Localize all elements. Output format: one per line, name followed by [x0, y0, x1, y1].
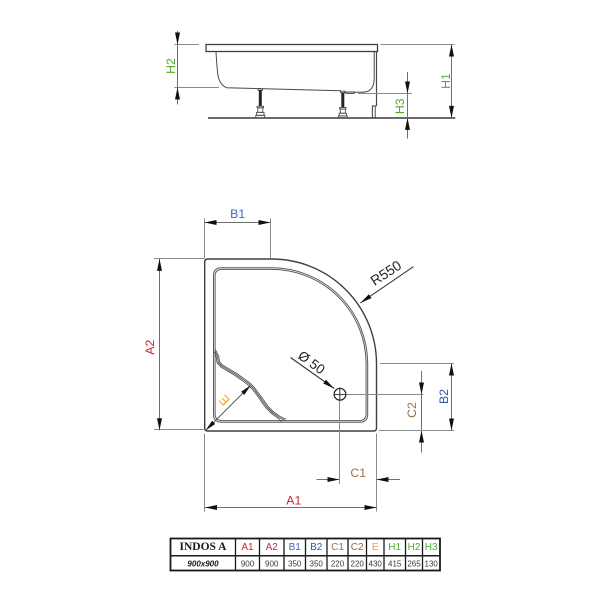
svg-text:350: 350 [310, 559, 324, 568]
svg-text:B1: B1 [230, 207, 245, 221]
svg-text:A2: A2 [266, 542, 279, 553]
svg-text:B1: B1 [289, 542, 302, 553]
svg-text:A1: A1 [286, 494, 301, 508]
svg-text:B2: B2 [310, 542, 323, 553]
svg-text:C1: C1 [331, 542, 344, 553]
svg-text:H1: H1 [388, 542, 401, 553]
svg-text:220: 220 [331, 559, 345, 568]
svg-text:900: 900 [241, 559, 255, 568]
svg-text:220: 220 [351, 559, 365, 568]
svg-text:H1: H1 [439, 73, 453, 89]
svg-text:H3: H3 [393, 98, 407, 114]
svg-text:H2: H2 [164, 58, 178, 74]
svg-text:350: 350 [288, 559, 302, 568]
svg-text:130: 130 [425, 559, 439, 568]
svg-text:B2: B2 [437, 389, 451, 404]
svg-text:H3: H3 [425, 542, 438, 553]
svg-text:C2: C2 [405, 402, 419, 418]
svg-text:415: 415 [388, 559, 402, 568]
svg-text:900x900: 900x900 [187, 559, 219, 568]
svg-text:A1: A1 [241, 542, 254, 553]
svg-text:A2: A2 [143, 340, 157, 355]
svg-text:INDOS A: INDOS A [180, 541, 228, 553]
svg-text:H2: H2 [408, 542, 421, 553]
svg-text:265: 265 [407, 559, 421, 568]
svg-text:E: E [372, 542, 379, 553]
svg-text:430: 430 [369, 559, 383, 568]
svg-text:C1: C1 [350, 466, 366, 480]
svg-text:C2: C2 [351, 542, 364, 553]
svg-text:900: 900 [265, 559, 279, 568]
